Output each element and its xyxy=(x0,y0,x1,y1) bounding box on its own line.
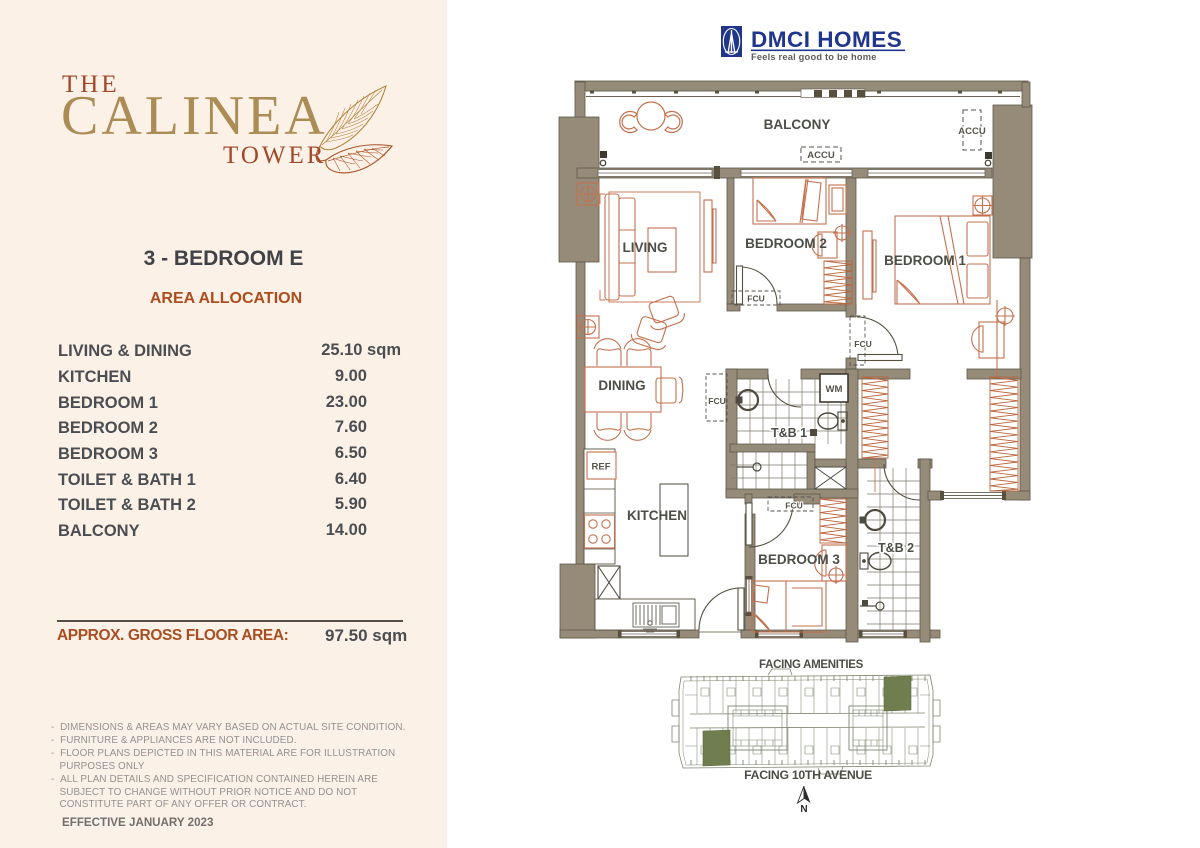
svg-text:REF: REF xyxy=(592,462,611,473)
svg-text:N: N xyxy=(800,804,807,815)
svg-text:T&B 2: T&B 2 xyxy=(878,541,914,555)
svg-text:BALCONY: BALCONY xyxy=(764,117,831,132)
svg-text:FACING 10TH AVENUE: FACING 10TH AVENUE xyxy=(744,768,872,782)
svg-text:BEDROOM 3: BEDROOM 3 xyxy=(758,552,840,567)
svg-text:DINING: DINING xyxy=(598,378,645,393)
svg-text:ACCU: ACCU xyxy=(958,126,986,137)
svg-text:FCU: FCU xyxy=(708,396,725,406)
svg-text:T&B 1: T&B 1 xyxy=(771,426,807,440)
svg-text:BEDROOM 2: BEDROOM 2 xyxy=(745,236,827,251)
svg-text:BEDROOM 1: BEDROOM 1 xyxy=(884,253,966,268)
svg-text:DMCI HOMES: DMCI HOMES xyxy=(751,27,902,52)
svg-text:WM: WM xyxy=(826,384,843,395)
svg-text:FCU: FCU xyxy=(785,501,802,511)
svg-text:FCU: FCU xyxy=(747,294,764,304)
svg-text:FCU: FCU xyxy=(854,339,871,349)
svg-text:KITCHEN: KITCHEN xyxy=(627,508,687,523)
svg-text:ACCU: ACCU xyxy=(807,150,835,161)
svg-text:LIVING: LIVING xyxy=(622,240,667,255)
